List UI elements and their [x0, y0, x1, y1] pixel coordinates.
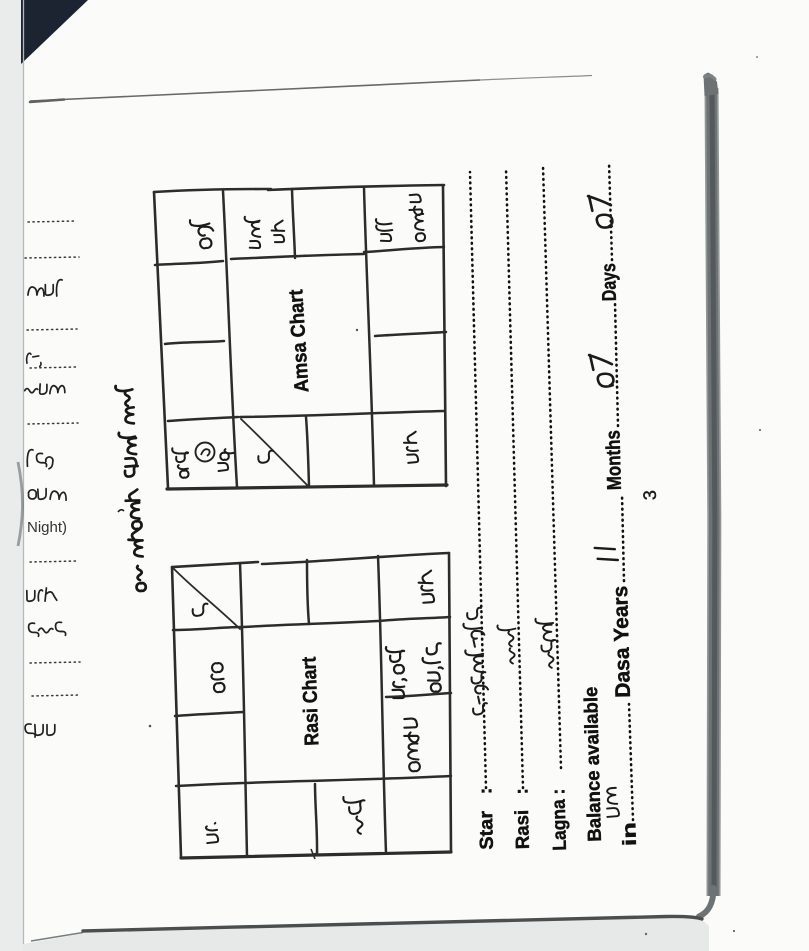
svg-text:Rasi Chart: Rasi Chart — [298, 656, 323, 746]
svg-text:Lagna :: Lagna : — [548, 788, 571, 851]
svg-text:3: 3 — [640, 490, 660, 501]
svg-text:Rasi :: Rasi : — [511, 788, 534, 850]
svg-text:Days: Days — [598, 263, 621, 302]
svg-text:Star :: Star : — [475, 787, 498, 850]
svg-text:Months: Months — [602, 430, 626, 491]
svg-text:Dasa Years: Dasa Years — [609, 585, 635, 698]
svg-text:Night): Night) — [27, 519, 67, 536]
svg-text:in: in — [619, 822, 641, 847]
svg-text:Balance available: Balance available — [581, 686, 606, 841]
